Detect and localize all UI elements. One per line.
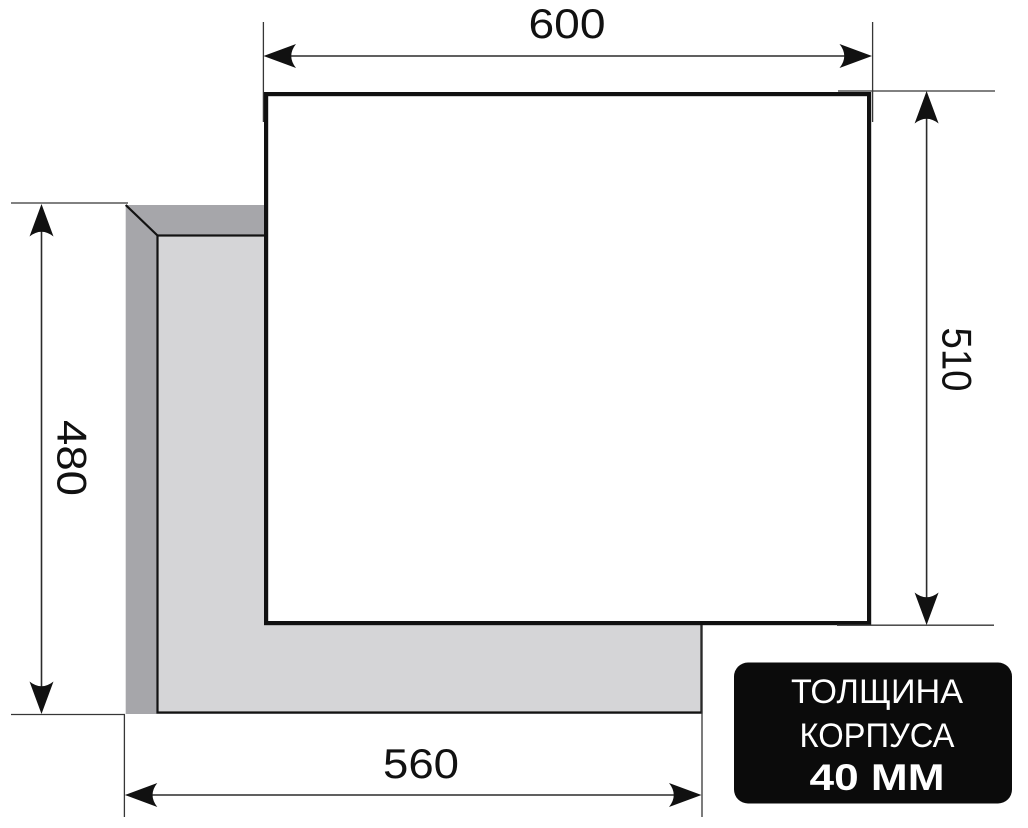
svg-text:480: 480 xyxy=(49,420,96,496)
svg-text:ТОЛЩИНА: ТОЛЩИНА xyxy=(791,673,963,711)
svg-text:600: 600 xyxy=(529,0,606,47)
svg-text:40 ММ: 40 ММ xyxy=(810,757,945,798)
svg-text:КОРПУСА: КОРПУСА xyxy=(800,717,955,755)
svg-text:510: 510 xyxy=(934,328,981,392)
svg-text:560: 560 xyxy=(383,740,459,787)
